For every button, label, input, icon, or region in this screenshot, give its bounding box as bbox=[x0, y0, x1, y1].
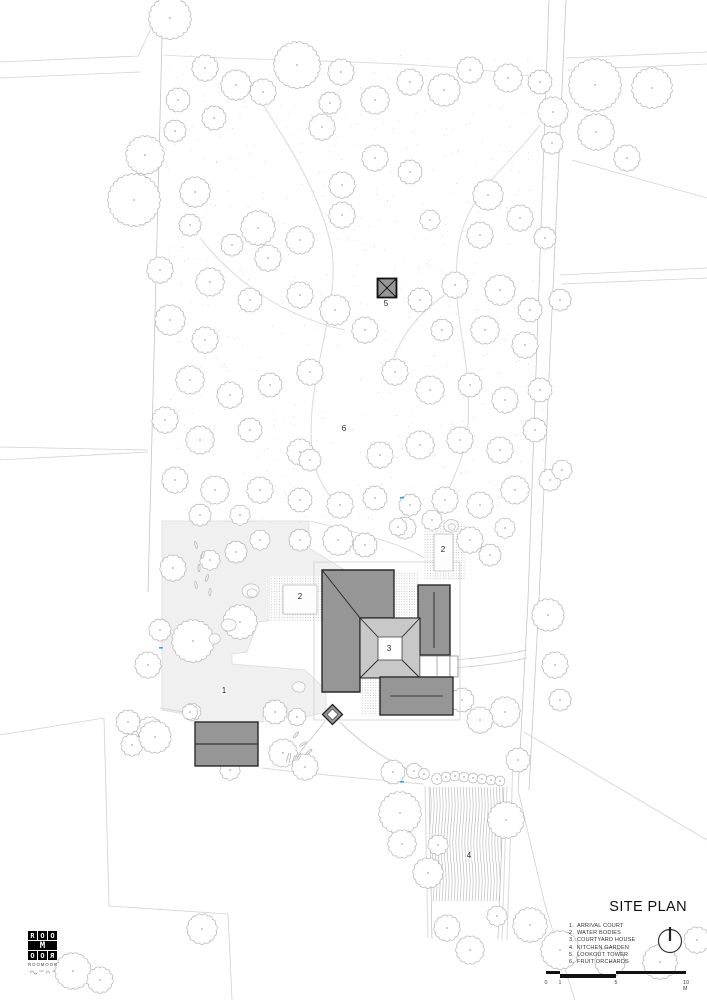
central-courtyard bbox=[378, 637, 402, 660]
legend-item: 6.FRUIT ORCHARDS bbox=[565, 959, 635, 966]
logo-row: ROO bbox=[28, 931, 60, 940]
legend-item: 1.ARRIVAL COURT bbox=[565, 923, 635, 930]
studio-logo: ROOMOOR ROOMOOR bbox=[28, 931, 60, 976]
legend-item-label: ARRIVAL COURT bbox=[577, 923, 624, 930]
tree bbox=[149, 0, 192, 40]
logo-letter: O bbox=[38, 931, 47, 940]
water-body-upper bbox=[434, 534, 453, 571]
house-room-block bbox=[420, 656, 450, 677]
legend-item-label: LOOKOUT TOWER bbox=[577, 952, 628, 959]
survey-mark bbox=[159, 647, 163, 649]
scale-segment bbox=[546, 971, 560, 974]
lookout-tower bbox=[378, 279, 397, 298]
logo-row: M bbox=[28, 941, 60, 950]
site-plan-drawing bbox=[0, 0, 707, 1000]
logo-mark: ROOMOOR bbox=[28, 931, 60, 960]
legend-item-number: 3. bbox=[565, 937, 574, 944]
legend-item: 2.WATER BODIES bbox=[565, 930, 635, 937]
scale-tick-label: 5 bbox=[615, 980, 618, 986]
scale-segment bbox=[616, 971, 686, 974]
logo-letter: M bbox=[28, 941, 57, 950]
survey-mark bbox=[400, 497, 404, 499]
page-title: SITE PLAN bbox=[559, 899, 687, 915]
logo-signature bbox=[28, 967, 58, 976]
site-plan-sheet: 1223456 SITE PLAN 1.ARRIVAL COURT2.WATER… bbox=[0, 0, 707, 1000]
legend-item-number: 6. bbox=[565, 959, 574, 966]
water-body-west bbox=[283, 585, 317, 614]
legend-list: 1.ARRIVAL COURT2.WATER BODIES3.COURTYARD… bbox=[565, 923, 635, 966]
legend-item: 5.LOOKOUT TOWER bbox=[565, 952, 635, 959]
legend-item-number: 2. bbox=[565, 930, 574, 937]
logo-letter: O bbox=[28, 951, 37, 960]
legend-item-label: WATER BODIES bbox=[577, 930, 621, 937]
legend-item-number: 1. bbox=[565, 923, 574, 930]
logo-letter: O bbox=[48, 931, 57, 940]
scale-tick-label: 0 bbox=[545, 980, 548, 986]
scale-segment bbox=[560, 974, 616, 977]
legend-item-label: FRUIT ORCHARDS bbox=[577, 959, 629, 966]
logo-letter: R bbox=[28, 931, 37, 940]
trees-layer bbox=[54, 0, 707, 993]
survey-mark bbox=[400, 781, 404, 783]
logo-letter: O bbox=[38, 951, 47, 960]
legend-item-number: 4. bbox=[565, 945, 574, 952]
legend-item-label: KITCHEN GARDEN bbox=[577, 945, 629, 952]
legend-item: 4.KITCHEN GARDEN bbox=[565, 945, 635, 952]
logo-letter: R bbox=[48, 951, 57, 960]
logo-wordmark: ROOMOOR bbox=[28, 962, 58, 967]
scale-tick-label: 1 bbox=[559, 980, 562, 986]
legend-item: 3.COURTYARD HOUSE bbox=[565, 937, 635, 944]
legend-item-number: 5. bbox=[565, 952, 574, 959]
legend-item-label: COURTYARD HOUSE bbox=[577, 937, 635, 944]
context-linework bbox=[0, 0, 707, 1000]
scale-tick-label: 10 M bbox=[683, 980, 689, 992]
logo-row: OOR bbox=[28, 951, 60, 960]
north-indicator-icon bbox=[654, 923, 688, 957]
scale-bar: 01510 M bbox=[546, 971, 687, 988]
